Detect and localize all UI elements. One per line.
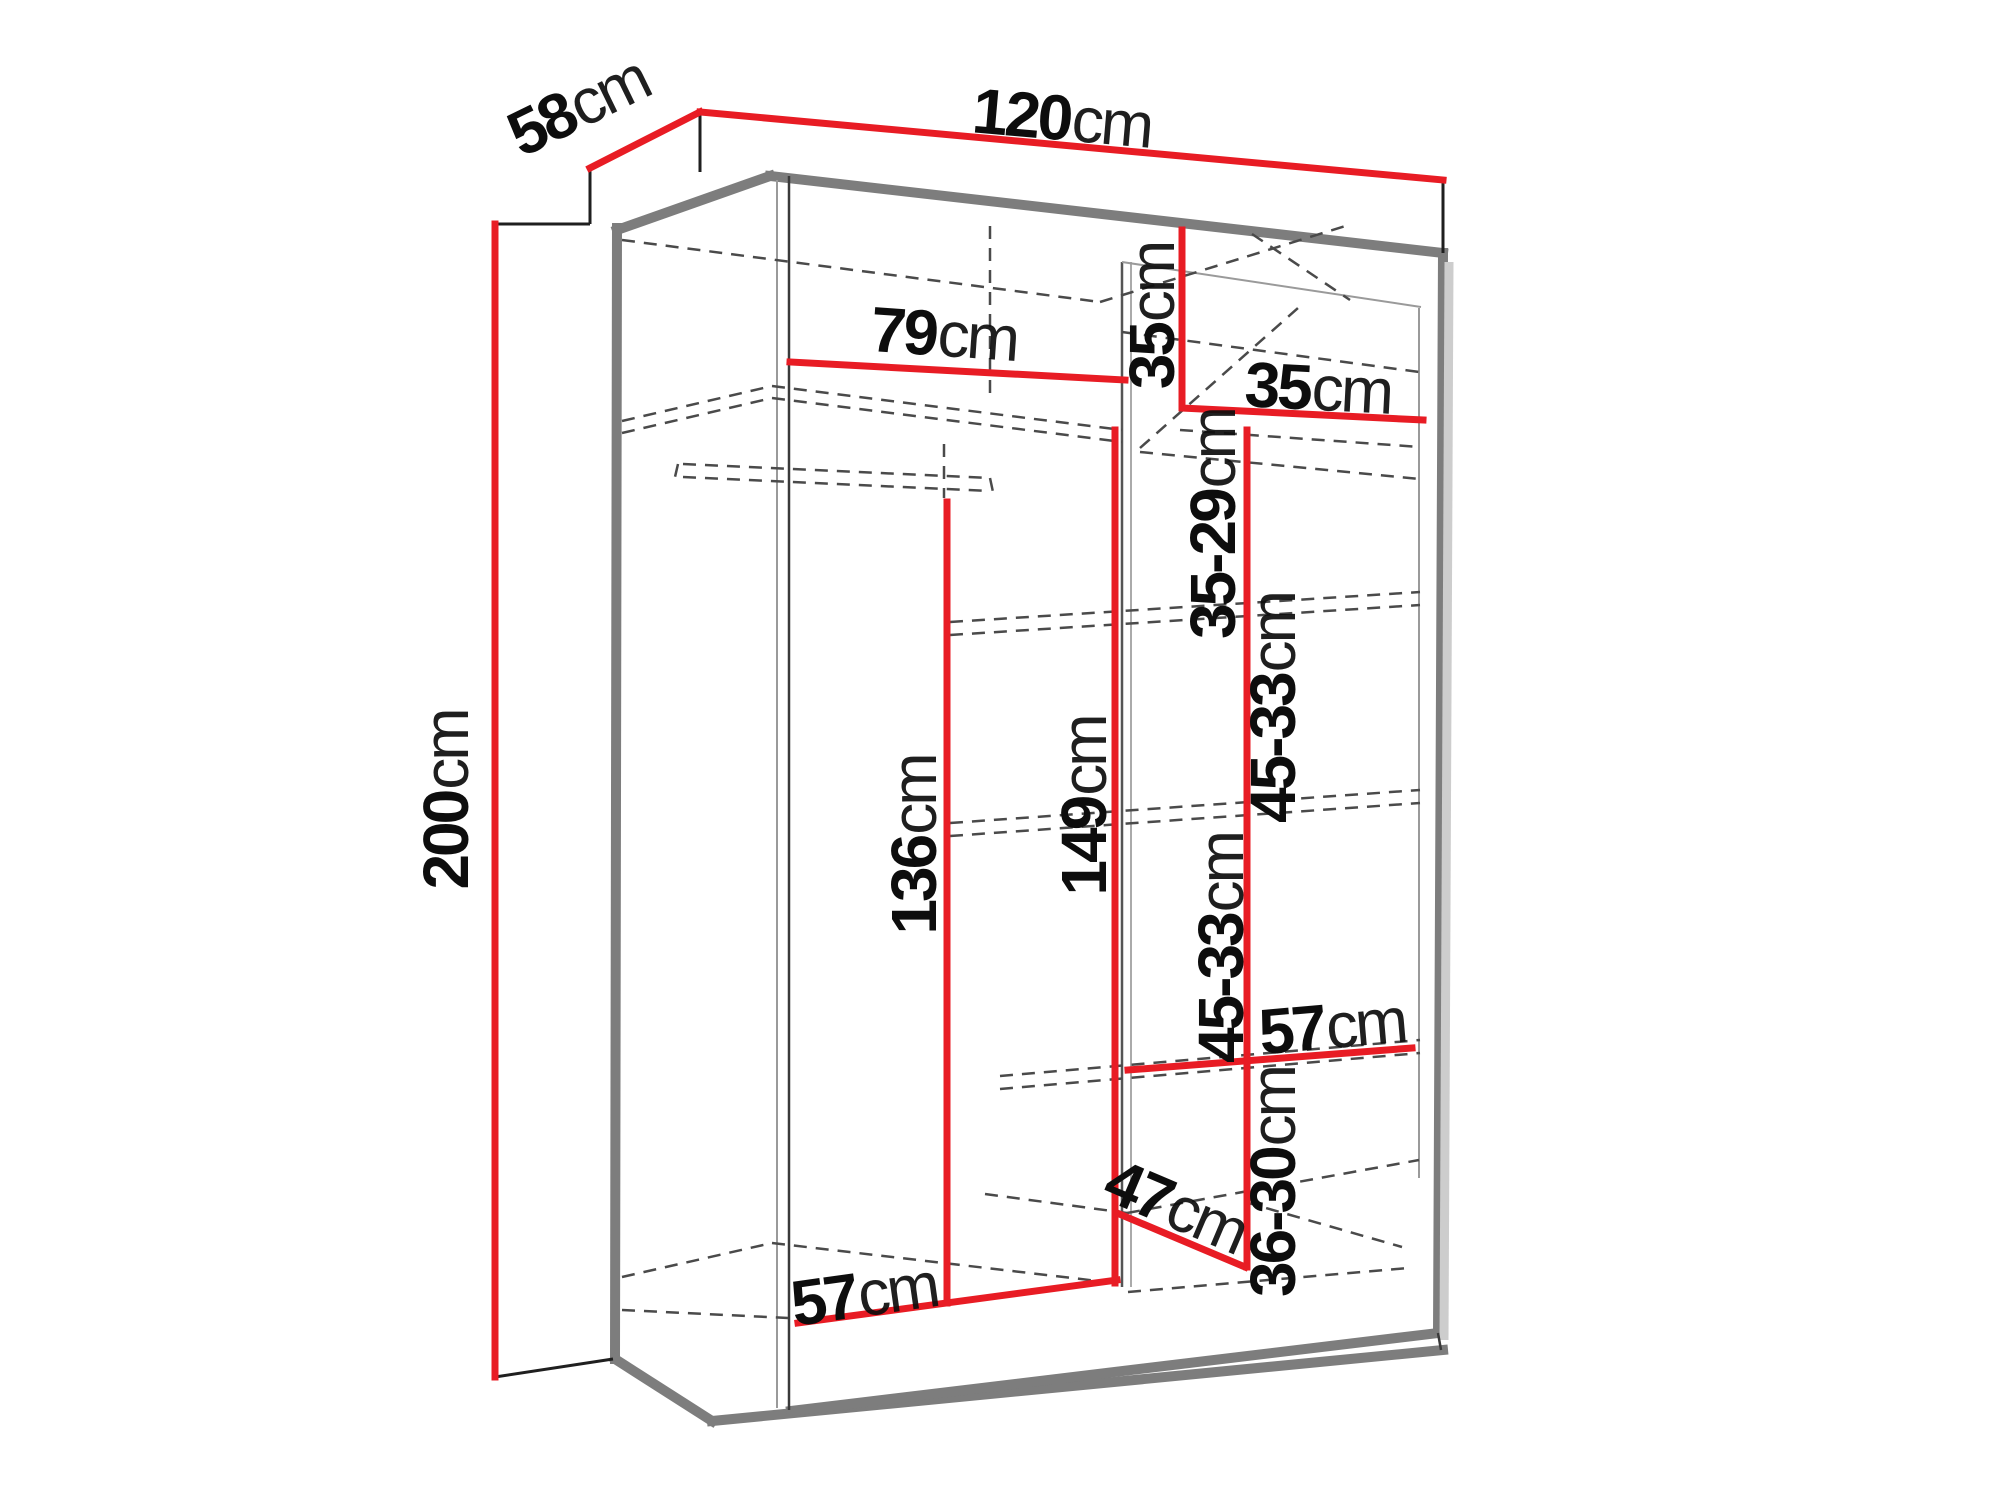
cabinet-shadow [1444, 262, 1449, 1340]
dim-label-interior-width-top: 79cm [869, 297, 1020, 371]
dim-label-shelf-column-height: 149cm [1052, 716, 1116, 895]
dim-label-height-left: 200cm [414, 710, 478, 889]
dim-label-shelf-gap-4: 36-30cm [1241, 1067, 1305, 1297]
dim-label-shelf-gap-3: 45-33cm [1189, 833, 1253, 1063]
dim-label-width-top: 120cm [970, 78, 1154, 157]
wardrobe-dimension-diagram: 58cm 120cm 200cm 79cm 35cm 35cm 35-29cm … [0, 0, 2000, 1500]
dim-label-top-cubby-width: 35cm [1243, 352, 1393, 424]
dim-label-shelf-gap-1: 35-29cm [1181, 409, 1245, 639]
dim-label-hanging-space-height: 136cm [882, 755, 946, 934]
wardrobe-line-drawing [0, 0, 2000, 1500]
dim-label-shelf-gap-2: 45-33cm [1241, 593, 1305, 823]
dim-label-top-cubby-height: 35cm [1120, 243, 1184, 390]
dim-label-shelf-width-right: 57cm [1256, 988, 1408, 1065]
